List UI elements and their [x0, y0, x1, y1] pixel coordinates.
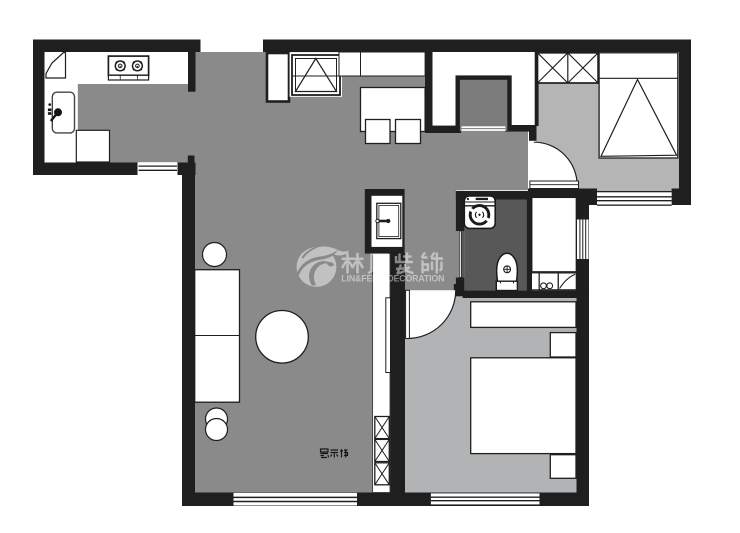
svg-text:LIN&FENG DECORATION: LIN&FENG DECORATION [341, 273, 444, 283]
